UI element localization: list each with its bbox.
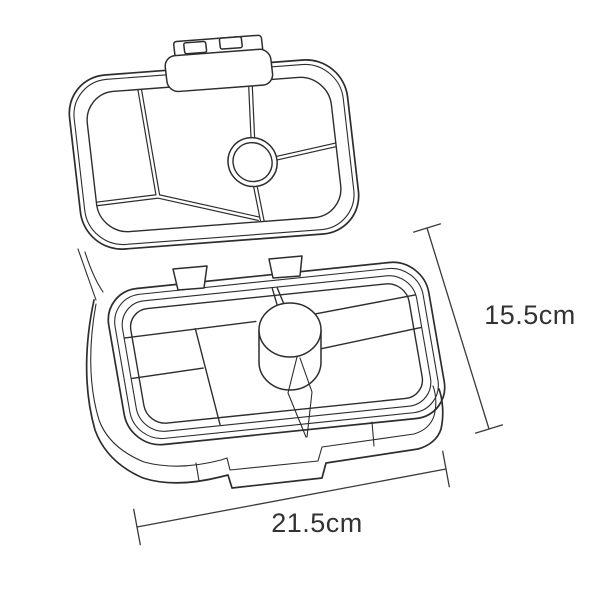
hinge-tabs [173,256,302,290]
dip-cup [259,303,321,437]
hinge-tab-left [173,266,207,290]
latch-clasp [164,48,274,92]
lunchbox-line-drawing: 15.5cm 21.5cm [0,0,600,600]
hinge-tab-right [269,256,302,278]
latch [162,35,273,93]
dip-cup-top [259,303,321,357]
lid [62,29,363,252]
latch-notch-left [184,41,207,54]
width-dimension: 21.5cm [134,451,450,544]
dimension-diagram-page: 15.5cm 21.5cm [0,0,600,600]
hinge-connector [78,249,103,300]
latch-notch-right [219,37,242,50]
lid-outline-inner [70,62,358,247]
front-seam-right [372,422,374,446]
front-seam-left [196,463,199,481]
lid-compartment-dividers [84,75,344,234]
width-dimension-label: 21.5cm [271,508,363,538]
height-dimension-label: 15.5cm [484,300,576,330]
height-dimension: 15.5cm [414,224,576,433]
